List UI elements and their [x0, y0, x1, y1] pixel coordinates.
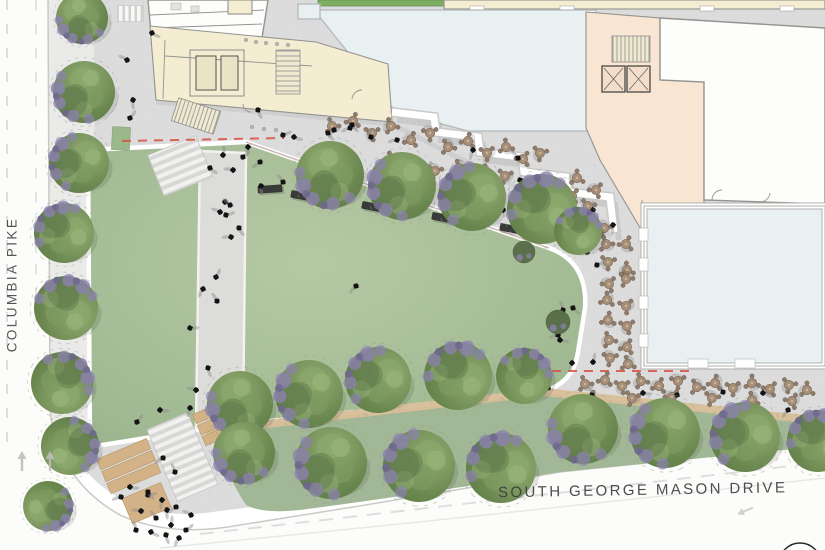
shrub-body — [546, 310, 570, 334]
atrium-annex — [298, 4, 320, 19]
stair — [276, 50, 300, 94]
table-center — [607, 261, 610, 264]
table-center — [584, 383, 587, 386]
interior-chair — [244, 38, 248, 42]
shrub — [513, 241, 535, 263]
shrub-flower — [550, 324, 557, 331]
table-center — [605, 243, 608, 246]
chair — [587, 188, 591, 192]
shrub — [546, 310, 570, 334]
chair — [590, 382, 594, 386]
chair — [611, 242, 615, 246]
building-right-blue — [639, 206, 825, 368]
chair — [596, 194, 600, 198]
interior-chair — [274, 128, 278, 132]
chair — [606, 267, 610, 271]
roof-penthouse — [228, 0, 252, 14]
interior-chair — [262, 127, 266, 131]
chair — [600, 282, 604, 286]
chair — [327, 117, 331, 121]
interior-chair — [275, 42, 279, 46]
interior-chair — [250, 125, 254, 129]
chair — [580, 375, 584, 379]
shrub-flower — [560, 323, 566, 329]
table-center — [331, 125, 334, 128]
chair — [337, 124, 341, 128]
stage-unit — [221, 56, 238, 90]
interior-chair — [286, 43, 290, 47]
stage-unit — [196, 56, 216, 90]
table-center — [608, 283, 611, 286]
chair — [598, 300, 602, 304]
chair — [544, 149, 549, 154]
chair — [537, 158, 542, 163]
roof-vent — [191, 6, 199, 12]
street-label-columbia-pike: COLUMBIA PIKE — [5, 215, 20, 355]
entry-crosswalk — [117, 5, 144, 22]
chair — [612, 257, 616, 261]
interior-chair — [254, 40, 258, 44]
roof-vent — [171, 3, 181, 10]
small-planting-bed — [111, 127, 130, 151]
interior-chair — [264, 41, 268, 45]
top-building-strip — [444, 0, 825, 9]
table-center — [606, 299, 609, 302]
shrub-flower — [516, 254, 523, 261]
shrub-flower — [526, 253, 532, 259]
table-center — [595, 189, 598, 192]
site-plan-svg — [0, 0, 825, 550]
green-roof-strip — [318, 0, 444, 6]
shrub-body — [513, 241, 535, 263]
site-plan: COLUMBIA PIKE SOUTH GEORGE MASON DRIVE — [0, 0, 825, 550]
stair — [612, 36, 650, 62]
chair — [605, 291, 609, 295]
